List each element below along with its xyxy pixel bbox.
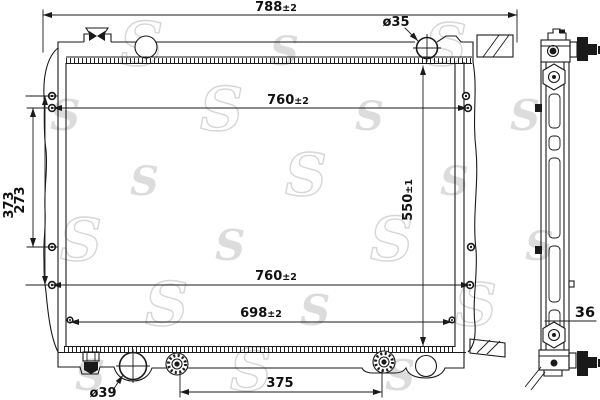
watermark-s: S	[270, 28, 299, 75]
dim-bracket-span-inner: 273	[13, 108, 36, 247]
dim-inlet-diameter: ø35	[382, 15, 418, 41]
drain-plug-right	[373, 351, 395, 373]
watermark-s: S	[285, 141, 327, 209]
watermark-layer: S S S S S S S S S S S S S S S S S S S S	[50, 10, 554, 400]
dim-drain-spacing: 375	[180, 370, 382, 397]
side-tab	[569, 281, 574, 287]
pin	[468, 244, 475, 251]
watermark-s: S	[440, 158, 469, 205]
filler-neck-circle	[135, 36, 157, 58]
lower-neck-circle	[416, 356, 437, 377]
watermark-s: S	[510, 91, 540, 140]
dim-label-760-upper: 760±2	[267, 93, 309, 108]
watermark-s: S	[215, 221, 245, 270]
upper-tab-hatch	[483, 35, 509, 57]
drain-plug-left	[166, 353, 188, 375]
dim-core-thickness: 36	[545, 305, 596, 321]
side-foot	[525, 350, 569, 390]
dim-label-36: 36	[575, 305, 595, 321]
dim-label-o35: ø35	[382, 15, 409, 30]
watermark-s: S	[355, 93, 384, 140]
dim-label-o39: ø39	[89, 386, 116, 400]
dim-width-pins-upper: 760±2	[53, 93, 467, 111]
radiator-drawing: S S S S S S S S S S S S S S S S S S S S	[0, 0, 600, 400]
watermark-s: S	[300, 286, 330, 335]
filler-cap	[84, 28, 111, 42]
front-view	[44, 28, 513, 383]
side-view	[525, 29, 600, 390]
dim-label-375: 375	[266, 376, 293, 391]
side-pin-lower	[535, 246, 542, 254]
pin	[463, 93, 470, 100]
outlet-pipe	[569, 351, 600, 376]
side-pin-upper	[535, 104, 542, 112]
watermark-s: S	[145, 270, 188, 340]
dim-label-788: 788±2	[255, 0, 297, 15]
side-column	[541, 62, 569, 350]
inlet-pipe	[570, 37, 600, 61]
side-cap-detail	[559, 30, 565, 34]
watermark-s: S	[130, 158, 159, 205]
dim-label-550: 550±1	[401, 179, 416, 221]
radiator-drawing-canvas: S S S S S S S S S S S S S S S S S S S S	[0, 0, 600, 400]
side-head-bolt	[550, 48, 557, 55]
dim-label-273: 273	[13, 186, 28, 213]
dim-label-760-lower: 760±2	[255, 269, 297, 284]
filler-cap-mark	[89, 31, 97, 41]
dim-label-698: 698±2	[240, 306, 282, 321]
dim-width-bottom: 698±2	[70, 306, 452, 325]
filler-cap-mark	[97, 31, 105, 41]
watermark-s: S	[200, 75, 243, 145]
